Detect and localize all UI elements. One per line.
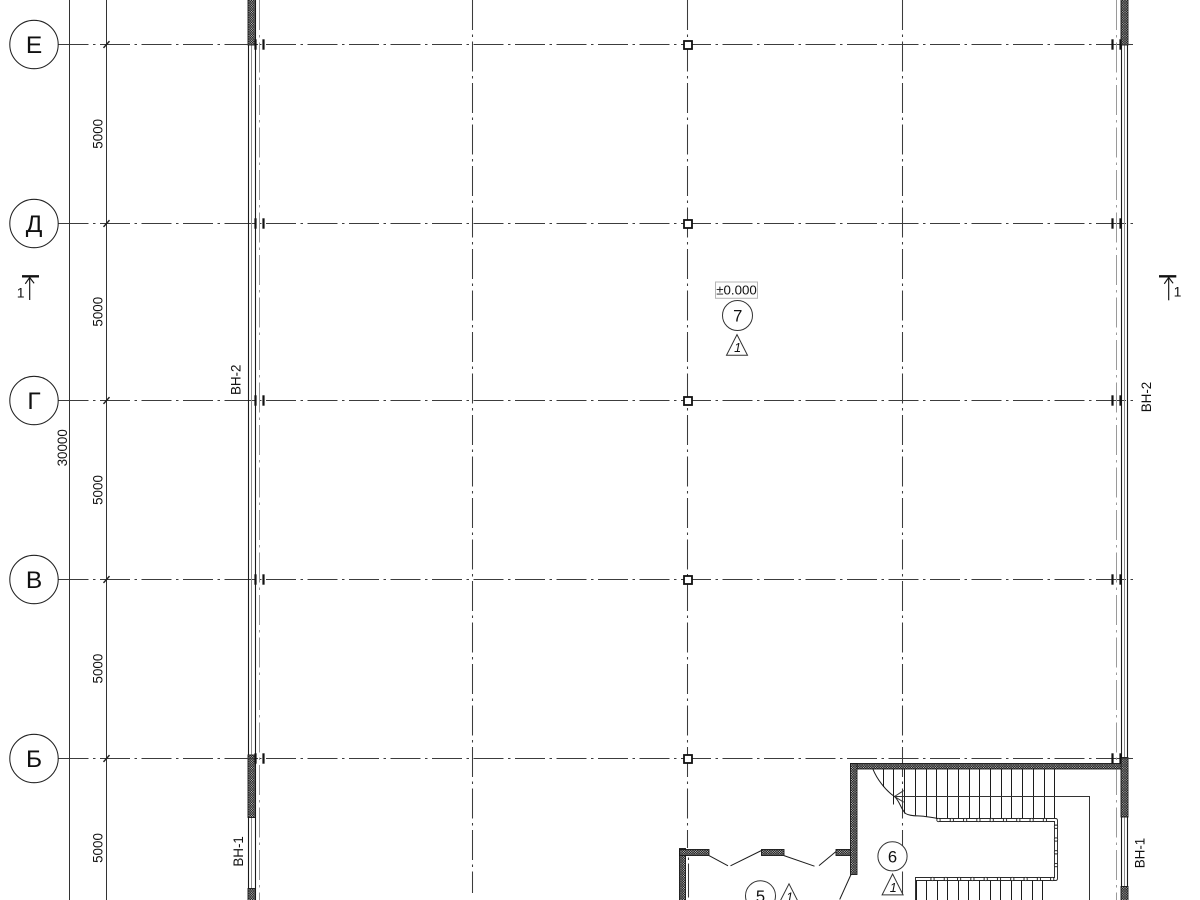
svg-text:1: 1	[890, 881, 897, 895]
svg-text:Г: Г	[27, 388, 40, 415]
svg-text:5000: 5000	[90, 475, 105, 505]
svg-text:5000: 5000	[90, 833, 105, 863]
svg-text:5000: 5000	[90, 119, 105, 149]
svg-text:5000: 5000	[90, 654, 105, 684]
svg-text:1: 1	[786, 890, 793, 900]
svg-text:5: 5	[756, 887, 765, 900]
svg-text:1: 1	[734, 341, 741, 355]
svg-text:5000: 5000	[90, 297, 105, 327]
svg-text:ВН-2: ВН-2	[228, 365, 243, 396]
svg-text:30000: 30000	[55, 429, 70, 466]
svg-text:1: 1	[17, 284, 25, 300]
svg-text:7: 7	[733, 306, 742, 325]
svg-text:Б: Б	[26, 746, 42, 773]
svg-text:1: 1	[1174, 284, 1182, 300]
svg-text:В: В	[26, 567, 42, 594]
svg-text:6: 6	[888, 847, 897, 866]
svg-text:Д: Д	[26, 211, 43, 238]
svg-text:ВН-2: ВН-2	[1139, 382, 1154, 413]
svg-text:Е: Е	[26, 32, 42, 59]
svg-text:ВН-1: ВН-1	[1132, 838, 1147, 869]
svg-text:ВН-1: ВН-1	[231, 836, 246, 867]
svg-text:±0.000: ±0.000	[716, 283, 757, 298]
